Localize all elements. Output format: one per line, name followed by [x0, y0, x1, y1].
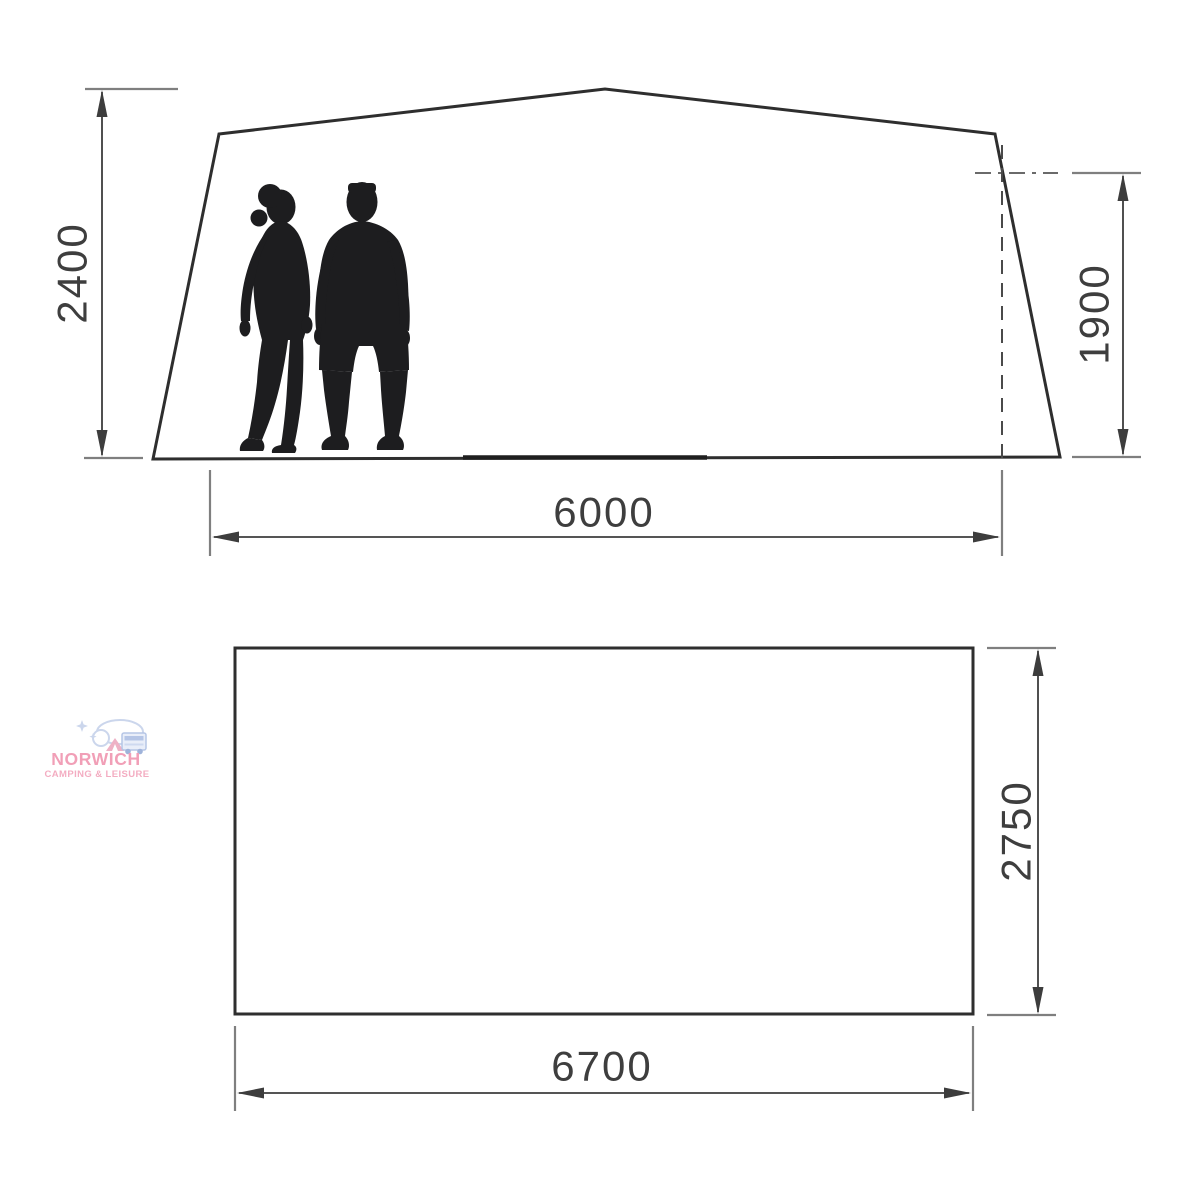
- man-silhouette: [314, 182, 410, 450]
- woman-silhouette: [240, 184, 313, 453]
- plan-view: 2750 6700: [235, 648, 1056, 1111]
- arrow-down: [97, 430, 108, 457]
- dimension-elevation-rear-height: 1900: [975, 145, 1141, 462]
- woman-hair-bun: [251, 210, 268, 227]
- dimension-plan-width: 6700: [235, 1026, 973, 1111]
- watermark-logo: NORWICH CAMPING & LEISURE: [45, 720, 150, 780]
- arrow-up: [1033, 649, 1044, 676]
- man-torso: [319, 221, 409, 324]
- woman-hair: [258, 184, 282, 208]
- woman-right-hand: [302, 317, 313, 334]
- man-shorts: [319, 324, 409, 372]
- plan-width-label: 6700: [551, 1043, 652, 1090]
- dimension-plan-depth: 2750: [987, 648, 1056, 1015]
- man-right-shoe: [377, 436, 404, 450]
- plan-depth-label: 2750: [993, 780, 1040, 881]
- arrow-down: [1033, 987, 1044, 1014]
- elevation-height-label: 2400: [49, 222, 96, 323]
- diagram-svg: 2400 1900 6000: [0, 0, 1200, 1200]
- arrow-right: [944, 1088, 971, 1099]
- watermark-tagline: CAMPING & LEISURE: [45, 769, 150, 780]
- arrow-left: [212, 532, 239, 543]
- tent-dimension-diagram: 2400 1900 6000: [0, 0, 1200, 1200]
- arrow-down: [1118, 429, 1129, 456]
- man-left-shoe: [321, 436, 349, 450]
- elevation-view: 2400 1900 6000: [49, 89, 1142, 556]
- elevation-width-label: 6000: [553, 489, 654, 536]
- arrow-up: [1118, 174, 1129, 201]
- woman-left-hand: [240, 320, 251, 337]
- dimension-elevation-height: 2400: [49, 89, 179, 458]
- man-right-leg: [380, 370, 408, 436]
- sparkle-icon: [76, 720, 88, 732]
- arrow-right: [973, 532, 1000, 543]
- watermark-name: NORWICH: [51, 749, 140, 769]
- arrow-up: [97, 90, 108, 117]
- woman-front-leg: [248, 340, 288, 440]
- man-left-leg: [322, 370, 352, 436]
- plan-footprint: [235, 648, 973, 1014]
- dimension-elevation-width: 6000: [210, 470, 1002, 556]
- man-hair: [348, 183, 376, 193]
- elevation-rear-height-label: 1900: [1071, 263, 1118, 364]
- woman-back-foot: [272, 445, 297, 453]
- cloud-small-icon: [93, 730, 109, 746]
- arrow-left: [237, 1088, 264, 1099]
- woman-front-foot: [240, 438, 265, 451]
